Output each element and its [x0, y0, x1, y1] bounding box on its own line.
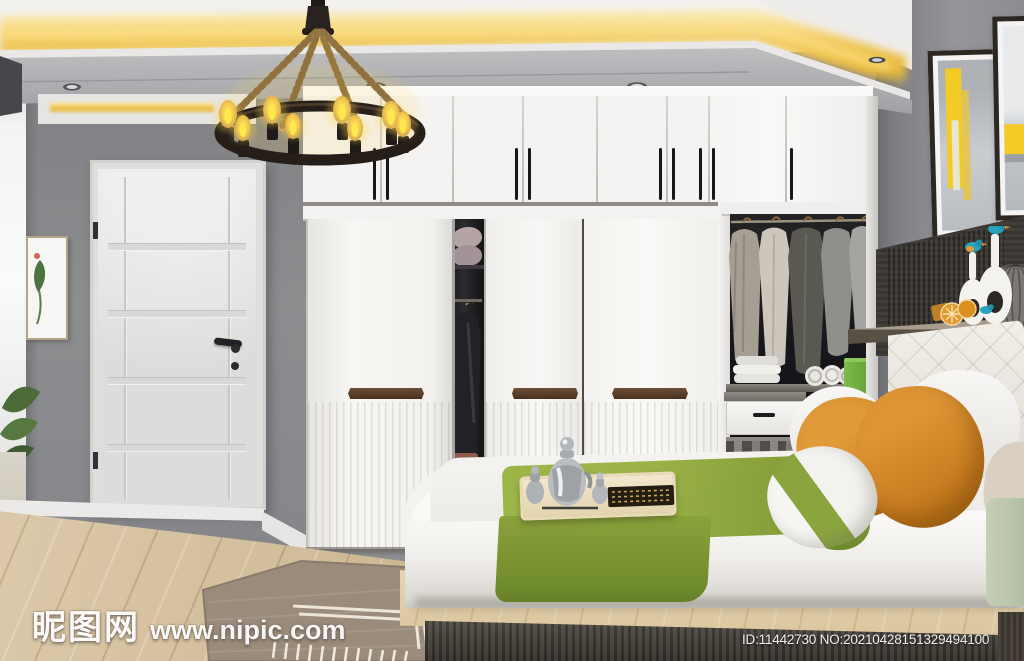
door-handle-rosette — [231, 344, 240, 353]
pale-green-sheet — [986, 498, 1024, 606]
stacked-pillow — [451, 244, 482, 267]
cabinet-handle — [659, 148, 662, 200]
folded-towel — [733, 365, 781, 374]
watermark: 昵图网 www.nipic.com — [32, 600, 346, 649]
shelf-decor — [836, 226, 1024, 334]
watermark-site: www.nipic.com — [150, 615, 346, 646]
cabinet-handle — [790, 148, 793, 200]
coat-charcoal — [788, 217, 826, 374]
hallway-ceiling-edge — [0, 56, 22, 116]
gap-shelf — [450, 265, 484, 269]
cabinet-handle — [515, 148, 518, 200]
kingfisher-bird — [965, 240, 988, 253]
dark-serving-board — [608, 485, 675, 507]
door-keyhole — [231, 362, 239, 370]
folded-towel — [736, 356, 778, 365]
drawer-handle — [753, 413, 775, 417]
downlight — [869, 57, 886, 63]
walnut-handle — [512, 388, 578, 399]
drawer-counter — [724, 392, 806, 401]
cabinet-seam — [785, 96, 787, 202]
gap-rail — [452, 299, 482, 302]
silver-tea-set — [512, 420, 682, 512]
bedroom-render: 昵图网 www.nipic.com ID:11442730 NO:2021042… — [0, 0, 1024, 661]
cabinet-seam — [666, 96, 668, 202]
closet-rail — [731, 220, 874, 222]
door-groove — [108, 444, 246, 452]
abstract-art-1 — [938, 59, 998, 230]
image-id-label: ID:11442730 NO:20210428151329494100 — [742, 632, 1012, 647]
cabinet-handle — [672, 148, 675, 200]
cabinet-seam — [522, 96, 524, 202]
cabinet-seam — [708, 96, 710, 202]
door-groove — [108, 310, 246, 318]
silver-teapot — [548, 437, 590, 506]
cabinet-handle — [712, 148, 715, 200]
folded-towel — [734, 374, 780, 383]
door-hinge — [93, 222, 98, 239]
walnut-handle — [612, 388, 688, 399]
silver-shaker — [526, 466, 544, 504]
coat-beige — [729, 218, 761, 365]
rope-chandelier — [190, 0, 450, 196]
abstract-art-frame-2 — [992, 15, 1024, 220]
door-groove — [108, 243, 246, 251]
kingfisher-bird — [988, 226, 1011, 234]
abstract-art-2 — [1002, 26, 1024, 211]
watermark-logo: 昵图网 — [32, 600, 140, 649]
grey-band — [1005, 154, 1024, 163]
door-groove — [108, 377, 246, 385]
cabinet-seam — [596, 96, 598, 202]
botanical-art-leaves — [28, 240, 62, 332]
yellow-band — [1004, 124, 1024, 155]
downlight — [63, 83, 81, 90]
green-runner-front — [495, 516, 712, 602]
coat-cream — [759, 217, 790, 367]
cabinet-handle — [528, 148, 531, 200]
yellow-stroke — [961, 90, 972, 200]
cabinet-handle — [699, 148, 702, 200]
walnut-handle — [348, 388, 424, 399]
cabinet-seam — [452, 96, 454, 202]
door-slab — [98, 169, 256, 507]
hanging-dark-garment — [450, 303, 484, 463]
silver-shaker — [592, 473, 608, 505]
door-hinge — [93, 452, 98, 469]
